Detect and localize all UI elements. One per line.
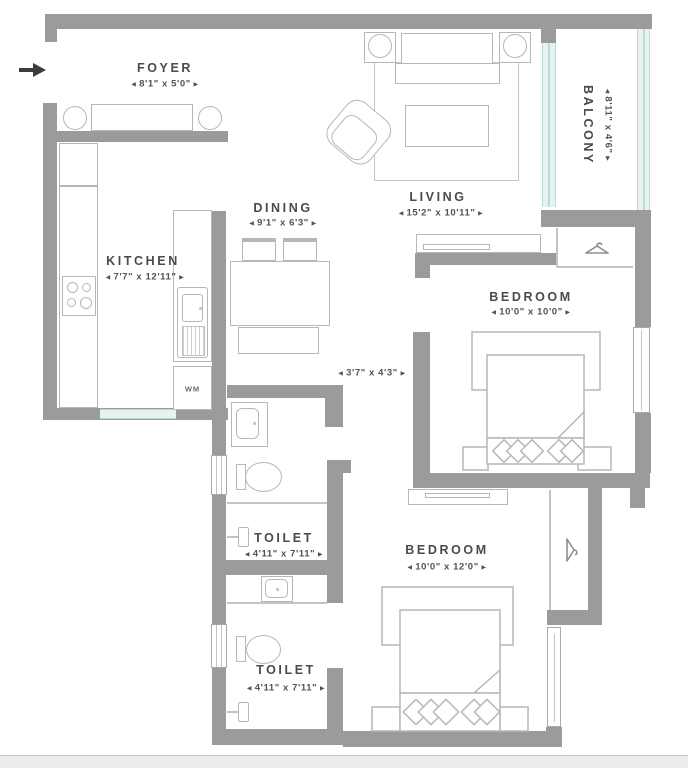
living-label: LIVING [409,190,466,204]
toilet2-dims: 4'11" x 7'11" [247,683,324,694]
toilet2-label: TOILET [256,663,316,677]
bedroom2-dims: 10'0" x 12'0" [408,562,487,573]
toilet2-wc-bowl [246,635,281,664]
toilet1-partition-line [227,502,327,504]
kitchen-window [100,409,176,419]
wall-toiletblock-right-b [327,668,343,729]
dining-bench [238,327,319,354]
kitchen-drainboard [182,326,205,356]
hanger-icon [562,536,582,564]
foyer-stool [198,106,222,130]
sofa-cushion [368,34,392,58]
foyer-label: FOYER [137,61,193,75]
wardrobe1-front-line [557,266,633,268]
dining-label: DINING [253,201,312,215]
floor-plan: WM [0,0,688,768]
toilet2-wc-tank [236,636,246,662]
wardrobe2-front-line [549,490,551,610]
kitchen-hob [62,276,96,316]
sofa-cushion [503,34,527,58]
image-footer-strip [0,755,688,768]
wall-foyer-bench [57,131,228,142]
wall-corridor-bedroom1 [413,332,430,473]
wall-right-stub-below [630,488,645,508]
wall-toilet-divider [212,560,343,575]
foyer-dims: 8'1" x 5'0" [132,79,199,90]
wall-right-outer-b [635,413,651,473]
wall-balcony-top-stub [541,29,556,43]
kitchen-cabinet-upper [59,143,98,186]
bedroom1-label: BEDROOM [489,290,572,304]
wall-toilet-bottom [212,729,343,745]
bedroom2-label: BEDROOM [405,543,488,557]
bedroom1-window [633,327,650,413]
wall-living-tv [415,253,556,265]
toilet2-shower [238,702,249,722]
toilet2-window [211,624,227,668]
wall-top-left-stub [45,29,57,42]
bed [368,585,532,735]
toilet1-basin [236,408,259,439]
bed [463,330,611,472]
entry-arrow-icon [18,60,48,80]
foyer-stool [63,106,87,130]
toilet1-label: TOILET [254,531,314,545]
living-tv [423,244,490,250]
sofa-seat [395,63,500,84]
toilet2-partition-line [227,602,327,604]
wall-corridor-step [325,398,343,427]
sofa-back [401,33,493,65]
wall-top [45,14,652,29]
wall-balcony-bottom [541,210,651,227]
passage-dims: 3'7" x 4'3" [339,368,406,379]
dining-table [230,261,330,326]
toilet1-shower [238,527,249,547]
wall-toiletblock-right-a [327,460,343,603]
kitchen-dims: 7'7" x 12'11" [106,272,184,283]
dining-chair [283,238,317,261]
dining-chair [242,238,276,261]
balcony-railing [637,29,650,210]
balcony-dims: 8'11" x 4'6" [603,89,614,161]
wall-niche2-bottom [547,610,602,625]
toilet2-basin [265,579,288,598]
toilet1-dims: 4'11" x 7'11" [245,549,322,560]
coffee-table [405,105,489,147]
kitchen-sink [182,294,203,322]
balcony-sliding-door [542,43,556,207]
bedroom2-tv [425,493,490,498]
wall-niche2-right [588,488,602,625]
toilet1-wc-bowl [245,462,282,492]
foyer-bench [91,104,193,131]
wardrobe1-side-line [556,228,558,267]
living-dims: 15'2" x 10'11" [399,208,483,219]
toilet1-window [211,455,227,495]
wall-bedrooms-divider [413,473,650,488]
wall-kitchen-dining [212,211,226,408]
washing-machine-label: WM [185,385,200,394]
kitchen-sink-unit [177,287,208,358]
bedroom1-dims: 10'0" x 10'0" [492,307,571,318]
kitchen-label: KITCHEN [106,254,180,268]
wall-dining-bottom [227,385,343,398]
wall-toiletblock-right-stub [343,460,351,473]
dining-dims: 9'1" x 6'3" [250,218,317,229]
wall-left-outer [43,103,57,420]
balcony-label: BALCONY [581,85,595,165]
bedroom2-window [547,627,561,727]
wall-living-tv-stub [415,265,430,278]
hanger-icon [583,238,611,258]
wall-right-outer-a [635,227,651,327]
